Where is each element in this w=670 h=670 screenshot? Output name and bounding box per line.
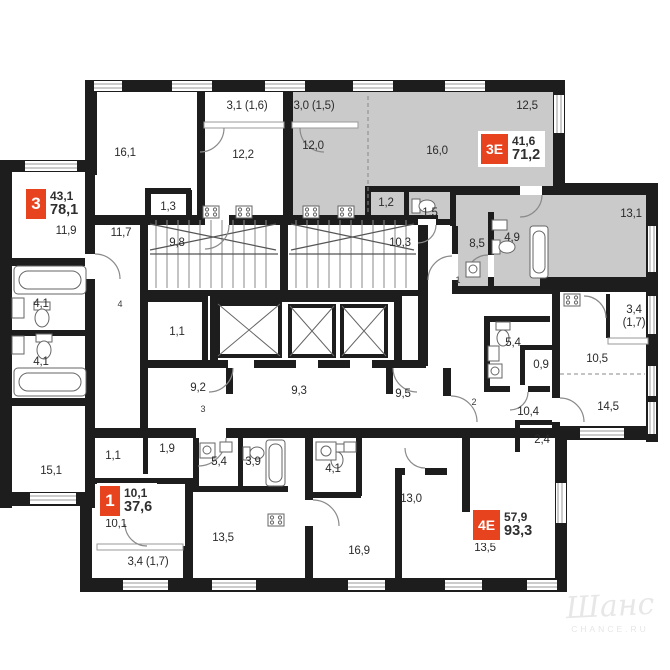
room-area-label: 3,9 [245, 456, 260, 468]
room-area-label: 12,0 [302, 140, 324, 152]
room-area-label: 10,4 [517, 406, 539, 418]
room-area-label: 3,1 (1,6) [226, 100, 267, 112]
room-area-label: 3,4 [626, 304, 641, 316]
room-area-label: 1,2 [378, 197, 393, 209]
room-area-label: 14,5 [597, 401, 619, 413]
entry-number: 2 [471, 397, 476, 407]
room-area-label: 4,9 [504, 232, 519, 244]
room-area-label: 9,3 [291, 385, 306, 397]
total-area-value: 93,3 [504, 524, 532, 539]
room-area-label: 9,5 [395, 388, 410, 400]
room-area-label: 3,4 (1,7) [127, 556, 168, 568]
apartment-type-badge: 3 [26, 189, 46, 219]
room-area-label: 1,5 [422, 207, 437, 219]
floor-plan: 16,1 3,1 (1,6) 12,2 3,0 (1,5) 12,0 16,0 … [0, 0, 670, 670]
room-area-label: 9,2 [190, 382, 205, 394]
room-area-label: 16,1 [114, 147, 136, 159]
living-area-value: 41,6 [512, 135, 540, 148]
floorplan-drawing [0, 0, 670, 670]
room-area-label: 2,4 [534, 434, 549, 446]
apartment-type-badge: 4Е [473, 510, 500, 540]
room-area-label: 4,1 [33, 356, 48, 368]
living-area-value: 10,1 [124, 487, 152, 500]
entry-number: 3 [200, 404, 205, 414]
room-area-label: 5,4 [211, 456, 226, 468]
room-area-label: 0,9 [533, 359, 548, 371]
entry-number: 4 [117, 299, 122, 309]
room-area-label: 10,3 [389, 237, 411, 249]
room-area-label: 1,9 [159, 443, 174, 455]
total-area-value: 78,1 [50, 203, 78, 218]
apartment-type-badge: 3Е [481, 134, 508, 164]
room-area-label: 1,1 [169, 326, 184, 338]
room-area-label: 1,1 [105, 450, 120, 462]
room-area-label: 12,5 [516, 100, 538, 112]
room-area-label: 13,1 [620, 208, 642, 220]
room-area-label: 12,2 [232, 149, 254, 161]
room-area-label: 13,0 [400, 493, 422, 505]
room-area-label: 16,9 [348, 545, 370, 557]
room-area-label: 1,3 [160, 201, 175, 213]
room-area-label: 3,0 (1,5) [293, 100, 334, 112]
room-area-label: 10,1 [105, 518, 127, 530]
apartment-type-badge: 1 [100, 486, 120, 516]
room-area-label: 13,5 [212, 532, 234, 544]
room-area-label: 8,5 [469, 238, 484, 250]
apartment-tag-1: 1 10,1 37,6 [98, 484, 156, 518]
living-area-value: 43,1 [50, 190, 78, 203]
entry-number: 1 [455, 275, 460, 285]
room-area-label: 9,8 [169, 237, 184, 249]
room-area-label: 11,7 [111, 227, 132, 239]
room-area-label: 10,5 [586, 353, 608, 365]
room-area-label: 13,5 [474, 542, 496, 554]
apartment-tag-3: 3 43,1 78,1 [24, 187, 82, 221]
room-area-label: 16,0 [426, 145, 448, 157]
room-area-label: 5,4 [505, 337, 520, 349]
room-area-label: (1,7) [623, 317, 646, 329]
apartment-tag-3e: 3Е 41,6 71,2 [479, 132, 544, 166]
room-area-label: 11,9 [56, 225, 77, 237]
apartment-tag-4e: 4Е 57,9 93,3 [471, 508, 536, 542]
elevator-icon [218, 304, 386, 356]
room-area-label: 4,1 [325, 463, 340, 475]
total-area-value: 37,6 [124, 500, 152, 515]
room-area-label: 4,1 [33, 298, 48, 310]
living-area-value: 57,9 [504, 511, 532, 524]
room-area-label: 15,1 [40, 465, 62, 477]
total-area-value: 71,2 [512, 148, 540, 163]
